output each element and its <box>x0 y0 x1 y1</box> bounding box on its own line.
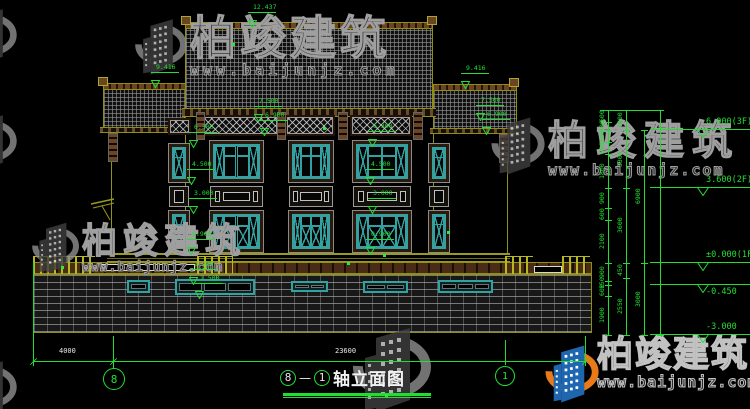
osnap-dot <box>447 231 450 234</box>
dim-tick <box>641 335 648 336</box>
title-axis-bubble-start: 8 <box>280 370 296 386</box>
window-frame <box>213 144 260 179</box>
title-underline-thick <box>283 393 431 396</box>
window-transom <box>174 157 184 158</box>
dim-value: 3300 <box>615 130 625 188</box>
window-pane <box>237 156 250 177</box>
vent-cell <box>387 285 405 289</box>
roof-ridge <box>186 23 432 29</box>
spandrel-ornament <box>215 191 220 202</box>
roof-right <box>433 84 517 132</box>
window-frame <box>172 214 186 249</box>
window-pane-x <box>249 216 258 247</box>
elevation-label: -0.450 <box>706 288 737 297</box>
marker-line <box>461 73 489 74</box>
dim-value: 6900 <box>633 130 643 263</box>
title-underline-thin <box>283 397 431 398</box>
eave-fascia <box>182 108 436 117</box>
vent-cell <box>295 285 309 288</box>
fence-vent <box>291 281 328 292</box>
dim-chain-line <box>660 110 661 335</box>
marker-line <box>366 239 394 240</box>
vent-cell <box>475 284 489 289</box>
roof-end-cap <box>181 16 191 25</box>
window-pane <box>224 156 237 177</box>
marker-label: 4.500 <box>371 161 391 168</box>
window-pane <box>301 156 311 177</box>
lattice-panel <box>170 120 189 133</box>
marker-triangle <box>187 240 196 248</box>
window-transom-pane <box>382 216 396 226</box>
extension-line <box>505 340 506 365</box>
dim-chain-line <box>644 130 645 335</box>
roof-end-cap <box>98 77 108 86</box>
spandrel-panel <box>429 186 449 207</box>
window-frame <box>292 214 330 249</box>
watermark-bottom: 柏竣建筑 www.baijunjz.com <box>597 336 750 390</box>
roof-end-cap <box>427 16 437 25</box>
dim-value: 600 <box>597 285 607 296</box>
marker-line <box>151 72 179 73</box>
dim-tick <box>605 335 612 336</box>
fence-vent <box>127 280 150 293</box>
marker-line <box>189 198 217 199</box>
drawing-title: 8 — 1 轴立面图 <box>280 365 405 390</box>
window-transom <box>434 157 444 158</box>
marker-label: 9.416 <box>156 64 176 71</box>
roof-ridge <box>434 85 516 91</box>
vent-cell <box>311 285 325 288</box>
corbel-bracket <box>338 112 348 140</box>
dim-value: 600 <box>597 130 607 142</box>
osnap-dot <box>385 394 388 397</box>
marker-label: 0.900 <box>371 231 391 238</box>
balustrade-posts <box>505 256 533 275</box>
window-transom-pane <box>224 216 237 226</box>
window-transom-pane <box>368 216 382 226</box>
marker-triangle <box>187 170 196 178</box>
window-pane-x <box>294 146 301 177</box>
window-transom-pane <box>301 146 311 156</box>
dim-value: 3000 <box>633 263 643 335</box>
roof-main <box>185 22 433 112</box>
spandrel-panel <box>169 186 189 207</box>
window-pane-x <box>215 216 224 247</box>
dim-value: 1000 <box>615 110 625 130</box>
marker-triangle <box>368 199 377 207</box>
spandrel-ornament <box>293 191 297 202</box>
osnap-dot <box>323 127 326 130</box>
window-transom <box>434 224 444 225</box>
marker-line <box>248 12 276 13</box>
watermark-url: www.baijunjz.com <box>597 374 750 391</box>
marker-triangle <box>248 13 257 21</box>
marker-label: 1.500 <box>200 275 220 282</box>
awning-detail <box>90 196 116 222</box>
dim-value: 1800 <box>597 154 607 188</box>
marker-label: 6.300 <box>194 124 214 131</box>
marker-triangle <box>189 199 198 207</box>
window-pane-x <box>321 146 328 177</box>
marker-label: 7.500 <box>259 98 279 105</box>
baijun-logo-color-icon <box>534 340 602 408</box>
window-pane-x <box>321 216 328 247</box>
marker-label: 0.900 <box>192 231 212 238</box>
window-1f <box>209 210 264 253</box>
axis-bubble: 8 <box>103 368 125 390</box>
fence-vent <box>438 280 493 293</box>
window-frame <box>432 214 446 249</box>
string-course <box>107 253 510 262</box>
window-pane-x <box>294 216 301 247</box>
baijun-logo-icon <box>0 4 20 70</box>
window-transom-pane <box>368 146 382 156</box>
window-pane-x <box>396 216 406 247</box>
osnap-dot <box>383 254 386 257</box>
string-course-line <box>107 258 510 259</box>
window-frame <box>432 147 446 179</box>
marker-triangle <box>366 170 375 178</box>
corbel-bracket <box>413 112 423 140</box>
dim-value: 900 <box>597 188 607 208</box>
spandrel-panel <box>289 186 333 207</box>
window-frame <box>213 214 260 249</box>
marker-label: 3.000 <box>194 190 214 197</box>
dim-tick <box>623 335 630 336</box>
extension-line <box>33 262 34 366</box>
marker-triangle <box>189 270 198 278</box>
marker-line <box>476 105 504 106</box>
marker-label: 6.900 <box>487 111 507 118</box>
marker-triangle <box>260 121 269 129</box>
marker-label: 6.900 <box>265 112 285 119</box>
marker-triangle <box>366 240 375 248</box>
osnap-dot <box>347 262 350 265</box>
baijun-logo-icon <box>0 110 20 176</box>
marker-line <box>189 132 217 133</box>
spandrel-ornament <box>358 191 364 202</box>
window-2f <box>428 143 450 183</box>
vent-cell <box>442 284 456 289</box>
dim-value: 4000 <box>59 348 76 355</box>
window-transom-pane <box>311 216 321 226</box>
marker-line <box>482 119 510 120</box>
axis-bubble: 1 <box>495 366 515 386</box>
dim-chain-line <box>626 110 627 335</box>
marker-triangle <box>195 284 204 292</box>
corbel-bracket <box>499 134 509 163</box>
marker-line <box>187 169 215 170</box>
osnap-dot <box>61 266 64 269</box>
vent-cell <box>367 285 385 289</box>
elevation-flag-triangle <box>697 278 709 287</box>
marker-line <box>260 120 288 121</box>
window-transom <box>174 224 184 225</box>
spandrel-ornament <box>253 191 258 202</box>
window-frame <box>172 147 186 179</box>
vent-cell <box>131 284 146 289</box>
spandrel-ornament <box>324 191 328 202</box>
spandrel-ornament <box>174 190 185 202</box>
window-1f <box>288 210 334 253</box>
lattice-panel <box>287 117 333 134</box>
dim-tick <box>657 335 664 336</box>
dim-value: 1900 <box>597 296 607 335</box>
vent-cell <box>458 284 472 289</box>
window-2f <box>209 140 264 183</box>
marker-line <box>368 198 396 199</box>
marker-label: 6.300 <box>373 123 393 130</box>
window-transom-pane <box>237 216 250 226</box>
balustrade-posts <box>562 256 590 275</box>
marker-label: 4.500 <box>192 161 212 168</box>
window-pane <box>237 226 250 247</box>
awning-lines <box>90 196 116 222</box>
balustrade-rail <box>100 264 195 271</box>
window-transom-pane <box>301 216 311 226</box>
window-pane-x <box>174 149 184 177</box>
marker-line <box>189 269 217 270</box>
window-pane-x <box>174 216 184 247</box>
watermark-brand: 柏竣建筑 <box>597 336 750 374</box>
marker-line <box>366 169 394 170</box>
marker-triangle <box>368 132 377 140</box>
watermark-right: 柏竣建筑 www.baijunjz.com <box>480 104 740 188</box>
elevation-label: -3.000 <box>706 323 737 332</box>
title-axis-bubble-end: 1 <box>314 370 330 386</box>
marker-triangle <box>151 73 160 81</box>
osnap-dot <box>232 43 235 46</box>
window-pane-x <box>434 216 444 247</box>
window-pane <box>311 156 321 177</box>
title-text: 轴立面图 <box>333 365 405 390</box>
dim-value: 450 <box>615 263 625 278</box>
window-2f <box>288 140 334 183</box>
marker-triangle <box>476 106 485 114</box>
marker-triangle <box>189 133 198 141</box>
spandrel-ornament <box>223 192 250 201</box>
balustrade-rail <box>534 266 562 273</box>
window-pane-x <box>215 146 224 177</box>
dim-value: 400 <box>597 122 607 130</box>
spandrel-panel <box>210 186 263 207</box>
marker-label: 7.500 <box>481 97 501 104</box>
spandrel-ornament <box>400 191 406 202</box>
dim-value: 2550 <box>615 278 625 335</box>
bottom-dim-line <box>33 361 585 362</box>
spandrel-ornament <box>300 192 322 201</box>
roof-ridge <box>104 84 185 90</box>
window-transom-pane <box>382 146 396 156</box>
dim-value: 2100 <box>597 220 607 263</box>
baijun-logo-icon <box>0 356 20 409</box>
dim-value: 600 <box>597 142 607 154</box>
vent-cell <box>228 283 251 291</box>
window-transom-pane <box>224 146 237 156</box>
window-pane <box>224 226 237 247</box>
marker-line <box>195 283 223 284</box>
dim-chain-top-line <box>600 110 660 111</box>
roof-end-cap <box>509 78 519 87</box>
fence-vent <box>363 281 408 293</box>
dim-value: 3600 <box>615 188 625 263</box>
title-dash: — <box>299 371 311 385</box>
cad-elevation-drawing: 柏竣建筑 www.baijunjz.com 柏竣建筑 www.baijunjz.… <box>0 0 750 409</box>
elevation-label: ±0.000(1F) <box>706 251 750 260</box>
balustrade-posts <box>33 256 95 275</box>
window-transom-pane <box>311 146 321 156</box>
marker-triangle <box>482 120 491 128</box>
window-transom-pane <box>237 146 250 156</box>
dim-chain-line <box>608 110 609 335</box>
marker-triangle <box>254 107 263 115</box>
marker-label: 3.000 <box>373 190 393 197</box>
marker-line <box>254 106 282 107</box>
window-pane <box>311 226 321 247</box>
window-pane <box>301 226 311 247</box>
corbel-bracket <box>108 133 118 162</box>
dim-value: 600 <box>597 208 607 220</box>
marker-triangle <box>461 74 470 82</box>
marker-label: 2.200 <box>194 261 214 268</box>
marker-line <box>368 131 396 132</box>
window-pane-x <box>249 146 258 177</box>
marker-line <box>187 239 215 240</box>
elevation-label: 3.600(2F) <box>706 176 750 185</box>
elevation-label: 6.900(3F) <box>706 118 750 127</box>
extension-line <box>113 336 114 369</box>
spandrel-ornament <box>434 190 445 202</box>
vent-cell <box>204 283 227 291</box>
marker-label: 12.437 <box>253 4 276 11</box>
dim-value: 23600 <box>335 348 356 355</box>
window-pane-x <box>396 146 406 177</box>
window-pane-x <box>434 149 444 177</box>
marker-label: 9.416 <box>466 65 486 72</box>
window-frame <box>292 144 330 179</box>
